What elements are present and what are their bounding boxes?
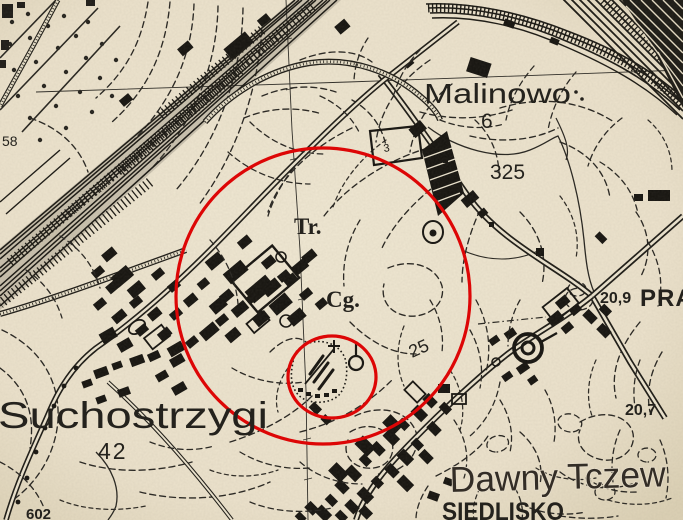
- svg-text:Cg.: Cg.: [326, 287, 360, 312]
- svg-text:42: 42: [98, 438, 128, 464]
- svg-text:58: 58: [2, 133, 18, 149]
- svg-text:Suchostrzygi: Suchostrzygi: [0, 395, 268, 436]
- svg-text:602: 602: [26, 506, 51, 520]
- svg-text:325: 325: [490, 161, 525, 184]
- svg-text:6: 6: [481, 110, 493, 133]
- svg-text:Dawny Tczew: Dawny Tczew: [449, 453, 667, 500]
- svg-text:20,9: 20,9: [600, 290, 631, 307]
- svg-text:Tr.: Tr.: [294, 214, 321, 239]
- svg-text:SIEDLISKO: SIEDLISKO: [442, 498, 564, 520]
- svg-text:PRA: PRA: [640, 285, 683, 312]
- svg-text:Malinowo: Malinowo: [424, 78, 571, 109]
- svg-text:20,7: 20,7: [625, 402, 656, 419]
